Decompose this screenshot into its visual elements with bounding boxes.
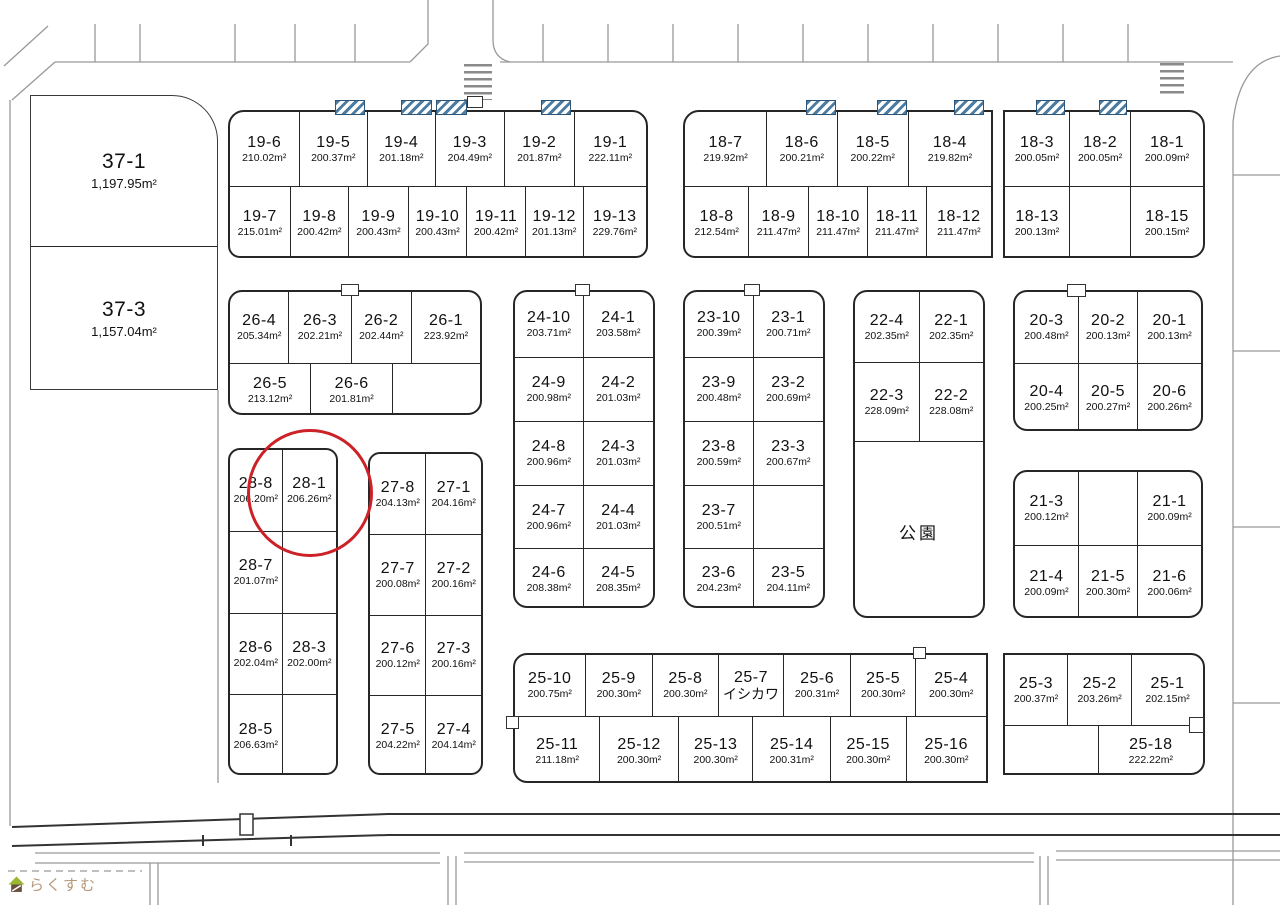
block-18-west: 18-7219.92m²18-6200.21m²18-5200.22m²18-4… [683,110,993,258]
lot-area: 201.03m² [596,393,640,405]
block-row: 23-8200.59m²23-3200.67m² [685,422,823,486]
lot-area: 200.30m² [663,689,707,701]
boundary-notch [1067,284,1086,297]
block-row: 23-7200.51m² [685,486,823,549]
block-27: 27-8204.13m²27-1204.16m²27-7200.08m²27-2… [368,452,483,775]
lot-area: 204.22m² [376,740,420,752]
lot-id: 24-1 [601,309,635,327]
lot-area: 200.12m² [376,659,420,671]
lot-21-4[interactable]: 21-4200.09m² [1015,546,1079,618]
lot-24-3[interactable]: 24-3201.03m² [584,422,653,485]
lot-19-12[interactable]: 19-12201.13m² [526,187,584,258]
lot-area: 204.14m² [432,740,476,752]
lot-area: 200.37m² [1014,694,1058,706]
lot-18-5[interactable]: 18-5200.22m² [838,112,909,186]
lot-id: 24-3 [601,438,635,456]
lot-25-13[interactable]: 25-13200.30m² [679,717,754,783]
block-row: 20-4200.25m²20-5200.27m²20-6200.26m² [1015,364,1201,431]
lot-id: 19-7 [243,208,277,226]
lot-id: 24-8 [532,438,566,456]
block-18-east: 18-3200.05m²18-2200.05m²18-1200.09m²18-1… [1003,110,1205,258]
lot-id: 27-7 [381,560,415,578]
lot-22-1[interactable]: 22-1202.35m² [920,292,984,362]
lot-area: 200.75m² [528,689,572,701]
lot-area: 211.47m² [757,227,801,239]
lot-id: 19-3 [453,134,487,152]
lot-area: 213.12m² [248,394,292,406]
empty-lot [1005,726,1099,775]
lot-23-8[interactable]: 23-8200.59m² [685,422,754,485]
lot-id: 20-2 [1091,312,1125,330]
lot-27-2[interactable]: 27-2200.16m² [426,535,481,615]
lot-23-5[interactable]: 23-5204.11m² [754,549,823,608]
lot-18-3[interactable]: 18-3200.05m² [1005,112,1070,186]
lot-21-1[interactable]: 21-1200.09m² [1138,472,1201,545]
lot-id: 24-4 [601,502,635,520]
lot-18-1[interactable]: 18-1200.09m² [1131,112,1203,186]
empty-lot [1070,187,1131,258]
lot-18-10[interactable]: 18-10211.47m² [809,187,868,258]
lot-19-10[interactable]: 19-10200.43m² [409,187,468,258]
selection-circle-28-1 [247,429,373,557]
lot-id: 27-8 [381,479,415,497]
block-row: 26-4205.34m²26-3202.21m²26-2202.44m²26-1… [230,292,480,364]
block-row: 24-9200.98m²24-2201.03m² [515,358,653,422]
lot-id: 25-10 [528,670,571,688]
lot-map: 37-11,197.95m²37-31,157.04m²19-6210.02m²… [0,0,1280,905]
lot-id: 26-4 [242,312,276,330]
lot-id: 28-5 [239,721,273,739]
empty-lot [393,364,480,415]
lot-area: 200.06m² [1147,587,1191,599]
lot-id: 19-8 [302,208,336,226]
lot-area: 1,197.95m² [91,177,157,191]
lot-25-8[interactable]: 25-8200.30m² [653,655,719,716]
lot-id: 18-4 [933,134,967,152]
lot-area: 201.87m² [517,153,561,165]
lot-23-7[interactable]: 23-7200.51m² [685,486,754,548]
lot-18-6[interactable]: 18-6200.21m² [767,112,837,186]
lot-id: 19-11 [475,208,517,226]
boundary-notch [575,284,590,296]
lot-area: 200.13m² [1086,331,1130,343]
lot-id: 18-15 [1145,208,1188,226]
lot-19-5[interactable]: 19-5200.37m² [300,112,369,186]
lot-id: 23-3 [771,438,805,456]
empty-lot [283,695,336,775]
block-row: 27-7200.08m²27-2200.16m² [370,535,481,616]
lot-18-15[interactable]: 18-15200.15m² [1131,187,1203,258]
block-row: 18-13200.13m²18-15200.15m² [1005,187,1203,258]
lot-20-6[interactable]: 20-6200.26m² [1138,364,1201,431]
lot-18-2[interactable]: 18-2200.05m² [1070,112,1131,186]
lot-23-3[interactable]: 23-3200.67m² [754,422,823,485]
lot-area: 203.58m² [596,328,640,340]
lot-23-2[interactable]: 23-2200.69m² [754,358,823,421]
lot-id: 23-5 [771,564,805,582]
lot-19-13[interactable]: 19-13229.76m² [584,187,646,258]
lot-id: 23-2 [771,374,805,392]
lot-id: 20-5 [1091,383,1125,401]
lot-27-7[interactable]: 27-7200.08m² [370,535,426,615]
lot-area: 200.30m² [929,689,973,701]
lot-id: 18-3 [1020,134,1054,152]
lot-area: 200.59m² [697,457,741,469]
block-22-and-park: 22-4202.35m²22-1202.35m²22-3228.09m²22-2… [853,290,985,618]
lot-area: 215.01m² [238,227,282,239]
block-row: 27-6200.12m²27-3200.16m² [370,616,481,696]
lot-area: 200.30m² [1086,587,1130,599]
lot-area: 201.07m² [234,576,278,588]
lot-25-10[interactable]: 25-10200.75m² [515,655,586,716]
lot-21-6[interactable]: 21-6200.06m² [1138,546,1201,618]
lot-id: 23-7 [702,502,736,520]
lot-area: 200.39m² [697,328,741,340]
lot-id: 25-3 [1019,675,1053,693]
lot-25-18[interactable]: 25-18222.22m² [1099,726,1203,775]
lot-25-16[interactable]: 25-16200.30m² [907,717,986,783]
lot-area: 222.22m² [1129,755,1173,767]
lot-area: 200.05m² [1078,153,1122,165]
lot-area: 206.63m² [234,740,278,752]
block-row: 20-3200.48m²20-2200.13m²20-1200.13m² [1015,292,1201,364]
lot-22-3[interactable]: 22-3228.09m² [855,363,920,441]
lot-area: 202.44m² [359,331,403,343]
lot-id: 28-6 [239,639,273,657]
lot-id: 24-9 [532,374,566,392]
lot-area: 200.96m² [527,521,571,533]
lot-area: 200.22m² [851,153,895,165]
lot-area: 201.13m² [532,227,576,239]
block-25-east: 25-3200.37m²25-2203.26m²25-1202.15m²25-1… [1003,653,1205,775]
lot-24-8[interactable]: 24-8200.96m² [515,422,584,485]
lot-area: 200.15m² [1145,227,1189,239]
block-20: 20-3200.48m²20-2200.13m²20-1200.13m²20-4… [1013,290,1203,431]
lot-19-7[interactable]: 19-7215.01m² [230,187,291,258]
lot-28-3[interactable]: 28-3202.00m² [283,614,336,694]
lot-id: 26-2 [364,312,398,330]
lot-id: 25-6 [800,670,834,688]
lot-area: 201.81m² [329,394,373,406]
block-24: 24-10203.71m²24-1203.58m²24-9200.98m²24-… [513,290,655,608]
lot-id: 27-3 [437,640,471,658]
lot-id: 24-2 [601,374,635,392]
lot-area: 204.23m² [697,583,741,595]
lot-area: 211.18m² [535,755,579,767]
lot-area: 200.43m² [356,227,400,239]
lot-id: 27-4 [437,721,471,739]
lot-area: 200.05m² [1015,153,1059,165]
lot-24-2[interactable]: 24-2201.03m² [584,358,653,421]
lot-27-8[interactable]: 27-8204.13m² [370,454,426,534]
block-row: 21-3200.12m²21-1200.09m² [1015,472,1201,546]
lot-24-4[interactable]: 24-4201.03m² [584,486,653,548]
lot-22-4[interactable]: 22-4202.35m² [855,292,920,362]
lot-id: 19-13 [593,208,636,226]
lot-28-5[interactable]: 28-5206.63m² [230,695,283,775]
lot-25-6[interactable]: 25-6200.31m² [784,655,851,716]
lot-id: 28-3 [292,639,326,657]
hatch-marker [401,100,432,115]
lot-id: 21-6 [1153,568,1187,586]
lot-26-6[interactable]: 26-6201.81m² [311,364,393,415]
lot-area: 200.09m² [1147,512,1191,524]
lot-id: 20-6 [1153,383,1187,401]
lot-20-2[interactable]: 20-2200.13m² [1079,292,1138,363]
lot-37-1[interactable]: 37-11,197.95m² [31,96,217,246]
lot-area: 203.71m² [527,328,571,340]
lot-27-5[interactable]: 27-5204.22m² [370,696,426,775]
lot-20-1[interactable]: 20-1200.13m² [1138,292,1201,363]
lot-area: 202.15m² [1145,694,1189,706]
block-row: 23-6204.23m²23-5204.11m² [685,549,823,608]
lot-area: 200.51m² [697,521,741,533]
lot-id: 20-1 [1153,312,1187,330]
lot-id: 18-9 [762,208,796,226]
lot-25-5[interactable]: 25-5200.30m² [851,655,917,716]
lot-id: 25-16 [925,736,968,754]
lot-26-1[interactable]: 26-1223.92m² [412,292,480,363]
lot-24-9[interactable]: 24-9200.98m² [515,358,584,421]
lot-area: 200.69m² [766,393,810,405]
lot-25-9[interactable]: 25-9200.30m² [586,655,654,716]
empty-lot [754,486,823,548]
block-row: 18-3200.05m²18-2200.05m²18-1200.09m² [1005,112,1203,187]
lot-23-6[interactable]: 23-6204.23m² [685,549,754,608]
block-row: 24-7200.96m²24-4201.03m² [515,486,653,549]
lot-id: 18-10 [816,208,859,226]
watermark-text: らくすむ [29,874,97,895]
lot-20-4[interactable]: 20-4200.25m² [1015,364,1079,431]
lot-id: 23-9 [702,374,736,392]
lot-area: 200.30m² [846,755,890,767]
lot-area: 200.25m² [1024,402,1068,414]
lot-area: 223.92m² [424,331,468,343]
block-row: 公園 [855,442,983,618]
lot-id: 28-7 [239,557,273,575]
lot-id: 24-5 [601,564,635,582]
lot-18-7[interactable]: 18-7219.92m² [685,112,767,186]
block-row: 37-11,197.95m² [31,96,217,247]
lot-27-3[interactable]: 27-3200.16m² [426,616,481,695]
lot-25-3[interactable]: 25-3200.37m² [1005,655,1068,725]
crosswalk-marker [464,64,492,100]
lot-id: 19-4 [384,134,418,152]
lot-23-1[interactable]: 23-1200.71m² [754,292,823,357]
lot-id: 23-6 [702,564,736,582]
lot-id: 25-11 [536,736,578,754]
lot-area: 200.42m² [474,227,518,239]
lot-id: 18-5 [856,134,890,152]
lot-26-5[interactable]: 26-5213.12m² [230,364,311,415]
lot-24-10[interactable]: 24-10203.71m² [515,292,584,357]
lot-area: 228.09m² [865,406,909,418]
lot-area: 200.31m² [770,755,814,767]
lot-id: 27-5 [381,721,415,739]
lot-id: 25-1 [1151,675,1185,693]
lot-19-11[interactable]: 19-11200.42m² [467,187,526,258]
lot-20-5[interactable]: 20-5200.27m² [1079,364,1138,431]
lot-area: 212.54m² [694,227,738,239]
hatch-marker [954,100,984,115]
boundary-notch [744,284,760,296]
lot-id: 23-10 [697,309,740,327]
lot-id: 22-1 [934,312,968,330]
lot-area: 202.35m² [865,331,909,343]
block-row: 19-6210.02m²19-5200.37m²19-4201.18m²19-3… [230,112,646,187]
lot-21-5[interactable]: 21-5200.30m² [1079,546,1138,618]
lot-area: 203.26m² [1077,694,1121,706]
lot-area: 200.26m² [1147,402,1191,414]
lot-25-2[interactable]: 25-2203.26m² [1068,655,1132,725]
lot-id: 25-8 [668,670,702,688]
lot-26-2[interactable]: 26-2202.44m² [352,292,412,363]
boundary-notch [467,96,483,108]
lot-19-6[interactable]: 19-6210.02m² [230,112,300,186]
lot-28-6[interactable]: 28-6202.04m² [230,614,283,694]
lot-37-3[interactable]: 37-31,157.04m² [31,247,217,390]
block-row: 19-7215.01m²19-8200.42m²19-9200.43m²19-1… [230,187,646,258]
lot-id: 27-1 [437,479,471,497]
lot-24-7[interactable]: 24-7200.96m² [515,486,584,548]
block-37: 37-11,197.95m²37-31,157.04m² [30,95,218,390]
lot-24-5[interactable]: 24-5208.35m² [584,549,653,608]
lot-19-8[interactable]: 19-8200.42m² [291,187,350,258]
block-row: 25-10200.75m²25-9200.30m²25-8200.30m²25-… [515,655,986,717]
lot-18-8[interactable]: 18-8212.54m² [685,187,749,258]
block-row: 25-3200.37m²25-2203.26m²25-1202.15m² [1005,655,1203,726]
hatch-marker [436,100,467,115]
lot-25-11[interactable]: 25-11211.18m² [515,717,600,783]
lot-id: 21-1 [1153,493,1187,511]
lot-area: 200.08m² [376,579,420,591]
lot-19-3[interactable]: 19-3204.49m² [436,112,506,186]
lot-id: 25-18 [1129,736,1172,754]
lot-18-11[interactable]: 18-11211.47m² [868,187,926,258]
lot-area: 202.04m² [234,658,278,670]
lot-id: 22-2 [934,387,968,405]
lot-id: 18-2 [1083,134,1117,152]
lot-id: 21-3 [1029,493,1063,511]
block-row: 21-4200.09m²21-5200.30m²21-6200.06m² [1015,546,1201,618]
empty-lot [1079,472,1138,545]
lot-21-3[interactable]: 21-3200.12m² [1015,472,1079,545]
lot-25-7[interactable]: 25-7イシカワ [719,655,785,716]
lot-27-4[interactable]: 27-4204.14m² [426,696,481,775]
lot-area: 200.48m² [1024,331,1068,343]
lot-area: 204.16m² [432,498,476,510]
boundary-notch [1189,717,1204,733]
watermark: らくすむ [8,874,97,895]
lot-19-1[interactable]: 19-1222.11m² [575,112,646,186]
lot-23-9[interactable]: 23-9200.48m² [685,358,754,421]
lot-23-10[interactable]: 23-10200.39m² [685,292,754,357]
hatch-marker [335,100,365,115]
block-row: 24-6208.38m²24-5208.35m² [515,549,653,608]
lot-area: 200.67m² [766,457,810,469]
lot-area: 201.03m² [596,521,640,533]
lot-27-6[interactable]: 27-6200.12m² [370,616,426,695]
lot-id: 18-12 [937,208,980,226]
lot-id: 23-8 [702,438,736,456]
lot-area: 200.30m² [617,755,661,767]
lot-id: 19-12 [533,208,576,226]
park-area: 公園 [855,442,983,618]
lot-24-1[interactable]: 24-1203.58m² [584,292,653,357]
lot-area: 204.49m² [448,153,492,165]
lot-area: 200.16m² [432,659,476,671]
lot-id: 18-13 [1015,208,1058,226]
hatch-marker [541,100,571,115]
lot-18-4[interactable]: 18-4219.82m² [909,112,991,186]
lot-25-4[interactable]: 25-4200.30m² [916,655,986,716]
block-row: 28-5206.63m² [230,695,336,775]
lot-19-2[interactable]: 19-2201.87m² [505,112,575,186]
lot-id: 18-1 [1150,134,1184,152]
lot-25-1[interactable]: 25-1202.15m² [1132,655,1203,725]
lot-24-6[interactable]: 24-6208.38m² [515,549,584,608]
lot-id: 19-9 [361,208,395,226]
lot-id: 25-4 [934,670,968,688]
lot-id: 26-6 [335,375,369,393]
hatch-marker [806,100,836,115]
lot-25-12[interactable]: 25-12200.30m² [600,717,679,783]
lot-area: 200.13m² [1147,331,1191,343]
lot-18-12[interactable]: 18-12211.47m² [927,187,991,258]
lot-id: 19-2 [522,134,556,152]
lot-26-3[interactable]: 26-3202.21m² [289,292,351,363]
block-row: 25-18222.22m² [1005,726,1203,775]
lot-27-1[interactable]: 27-1204.16m² [426,454,481,534]
block-row: 26-5213.12m²26-6201.81m² [230,364,480,415]
lot-22-2[interactable]: 22-2228.08m² [920,363,984,441]
lot-25-14[interactable]: 25-14200.31m² [753,717,831,783]
lot-id: 21-4 [1029,568,1063,586]
lot-id: 18-7 [709,134,743,152]
lot-id: 25-15 [847,736,890,754]
lot-area: 200.12m² [1024,512,1068,524]
lot-area: 200.37m² [311,153,355,165]
lot-area: 208.35m² [596,583,640,595]
lot-area: 201.03m² [596,457,640,469]
lot-18-13[interactable]: 18-13200.13m² [1005,187,1070,258]
lot-18-9[interactable]: 18-9211.47m² [749,187,808,258]
lot-area: 200.71m² [766,328,810,340]
lot-area: 210.02m² [242,153,286,165]
lot-area: 228.08m² [929,406,973,418]
block-23: 23-10200.39m²23-1200.71m²23-9200.48m²23-… [683,290,825,608]
house-logo-icon [8,876,25,893]
lot-id: 25-7 [734,669,768,687]
lot-19-9[interactable]: 19-9200.43m² [349,187,409,258]
block-19: 19-6210.02m²19-5200.37m²19-4201.18m²19-3… [228,110,648,258]
lot-26-4[interactable]: 26-4205.34m² [230,292,289,363]
lot-id: 18-6 [785,134,819,152]
lot-id: 18-11 [876,208,918,226]
lot-id: 19-5 [316,134,350,152]
lot-area: 204.11m² [766,583,810,595]
block-row: 24-8200.96m²24-3201.03m² [515,422,653,486]
lot-area: 202.21m² [298,331,342,343]
crosswalk-marker [1160,63,1184,97]
lot-19-4[interactable]: 19-4201.18m² [368,112,436,186]
lot-area: 202.35m² [929,331,973,343]
block-row: 27-8204.13m²27-1204.16m² [370,454,481,535]
lot-area: 1,157.04m² [91,325,157,339]
lot-20-3[interactable]: 20-3200.48m² [1015,292,1079,363]
lot-25-15[interactable]: 25-15200.30m² [831,717,907,783]
block-row: 24-10203.71m²24-1203.58m² [515,292,653,358]
